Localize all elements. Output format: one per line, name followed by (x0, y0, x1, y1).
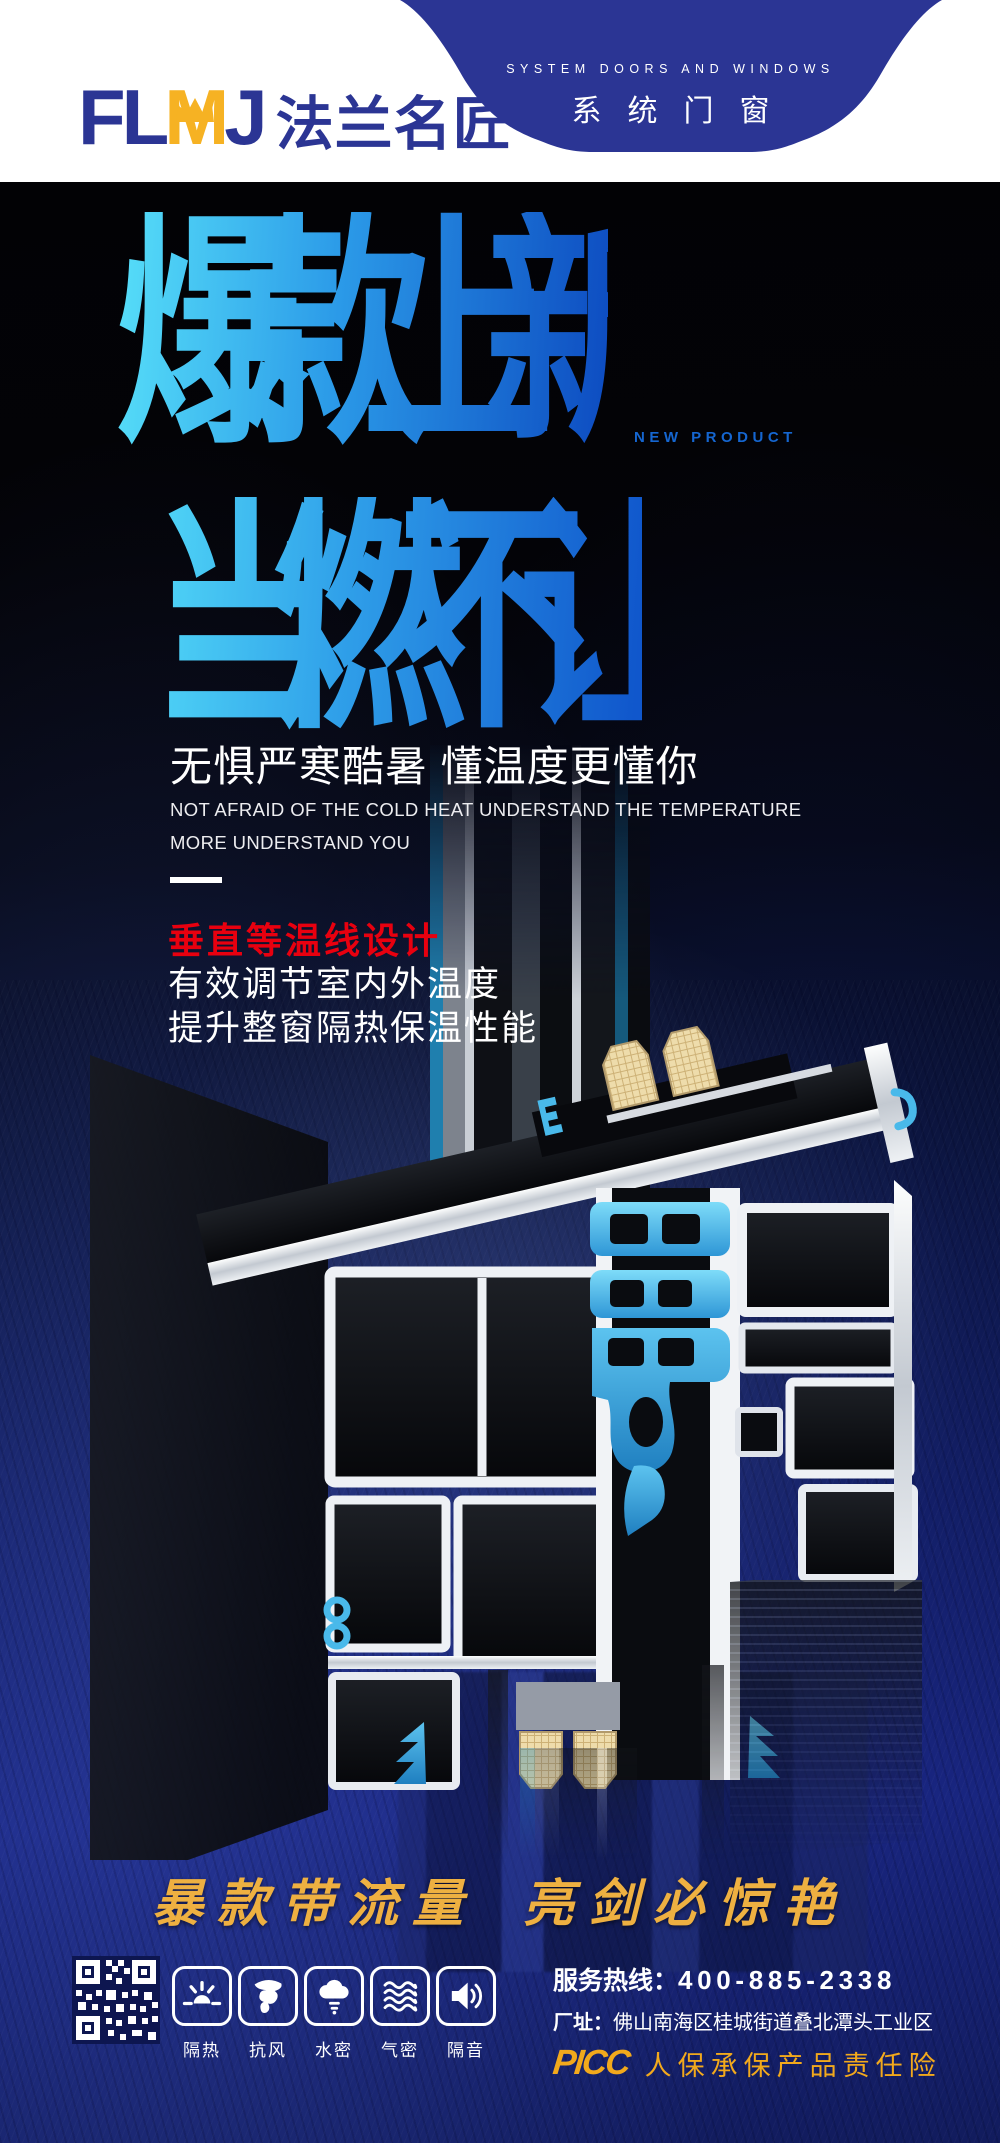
subtitle-chinese: 无惧严寒酷暑 懂温度更懂你 (170, 733, 699, 794)
logo-letters-fl: FL (78, 78, 165, 156)
logo-letter-j: J (224, 78, 263, 156)
contact-block: 服务热线：400-885-2338 厂址：佛山南海区桂城街道叠北潭头工业区 PI… (553, 1961, 942, 2083)
sun-icon (172, 1966, 232, 2026)
insurance-row: PICC 人保承保产品责任险 (553, 2043, 942, 2083)
feature-label: 隔热 (183, 2036, 221, 2061)
main-title-line1: 爆款上新 (116, 212, 608, 458)
feature-cell-sound: 隔音 (436, 1966, 496, 2061)
section-dash (170, 877, 222, 883)
factory-address: 厂址：佛山南海区桂城街道叠北潭头工业区 (553, 2006, 942, 2035)
window-profile-cross-section-image (90, 710, 970, 1860)
logo-letter-m: M (164, 78, 225, 156)
feature-cell-air: 气密 (370, 1966, 430, 2061)
hotline-number: 400-885-2338 (678, 1965, 896, 1995)
feature-label: 抗风 (249, 2036, 287, 2061)
rain-icon (304, 1966, 364, 2026)
feature-icons-row: 隔热 抗风 水密 (172, 1966, 496, 2061)
header-band: FL M J 法兰名匠 SYSTEM DOORS AND WINDOWS 系统门… (0, 0, 1000, 182)
badge-english-text: SYSTEM DOORS AND WINDOWS (398, 62, 943, 76)
hotline-label: 服务热线： (553, 1967, 678, 1995)
tornado-icon (238, 1966, 298, 2026)
feature-label: 气密 (381, 2036, 419, 2061)
feature-line2: 提升整窗隔热保温性能 (168, 1000, 538, 1051)
poster-page: FL M J 法兰名匠 SYSTEM DOORS AND WINDOWS 系统门… (0, 0, 1000, 2143)
crown-icon (175, 56, 215, 134)
waves-icon (370, 1966, 430, 2026)
feature-label: 水密 (315, 2036, 353, 2061)
address-value: 佛山南海区桂城街道叠北潭头工业区 (613, 2012, 933, 2034)
subtitle-english-line2: MORE UNDERSTAND YOU (170, 832, 410, 854)
feature-label: 隔音 (447, 2036, 485, 2061)
subtitle-english-line1: NOT AFRAID OF THE COLD HEAT UNDERSTAND T… (170, 799, 802, 821)
gold-slogan: 暴款带流量亮剑必惊艳 (0, 1862, 1000, 1936)
qr-code (72, 1956, 160, 2044)
header-badge: SYSTEM DOORS AND WINDOWS 系统门窗 (398, 0, 943, 152)
insurance-text: 人保承保产品责任险 (645, 2044, 942, 2083)
feature-cell-water: 水密 (304, 1966, 364, 2061)
new-product-label: NEW PRODUCT (634, 429, 797, 446)
feature-cell-insulation: 隔热 (172, 1966, 232, 2061)
main-title-line2: 当燃不让 (150, 497, 642, 743)
picc-logo: PICC (551, 2043, 631, 2083)
badge-chinese-text: 系统门窗 (398, 86, 943, 130)
service-hotline: 服务热线：400-885-2338 (553, 1961, 942, 1997)
slogan-left: 暴款带流量 (152, 1875, 477, 1932)
address-label: 厂址： (553, 2012, 613, 2034)
speaker-icon (436, 1966, 496, 2026)
feature-cell-wind: 抗风 (238, 1966, 298, 2061)
slogan-right: 亮剑必惊艳 (523, 1875, 848, 1932)
